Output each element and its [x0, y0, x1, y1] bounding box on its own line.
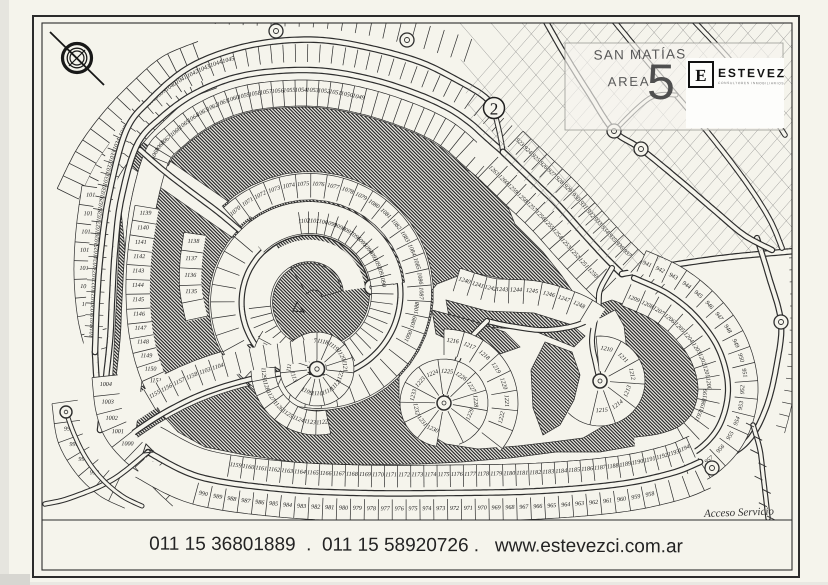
svg-text:1076: 1076: [312, 181, 326, 188]
svg-text:1177: 1177: [464, 472, 477, 478]
svg-text:1003: 1003: [102, 400, 114, 406]
svg-text:1147: 1147: [135, 326, 148, 332]
svg-text:1142: 1142: [133, 254, 145, 260]
svg-text:1055: 1055: [283, 88, 295, 95]
svg-text:ESTEVEZ: ESTEVEZ: [718, 66, 786, 80]
svg-text:961: 961: [603, 498, 613, 505]
svg-text:970: 970: [478, 506, 487, 512]
svg-text:1138: 1138: [188, 239, 200, 245]
svg-text:1141: 1141: [135, 240, 147, 246]
svg-text:1002: 1002: [106, 416, 118, 422]
svg-text:1140: 1140: [137, 225, 149, 231]
svg-text:965: 965: [547, 503, 556, 510]
svg-text:1148: 1148: [137, 339, 149, 345]
svg-text:1228: 1228: [472, 395, 479, 408]
svg-text:1174: 1174: [425, 472, 437, 478]
svg-text:1225: 1225: [441, 369, 454, 376]
svg-text:1221: 1221: [503, 395, 509, 407]
svg-text:981: 981: [325, 505, 334, 511]
svg-text:1075: 1075: [297, 181, 310, 188]
svg-text:1145: 1145: [132, 297, 144, 303]
svg-text:969: 969: [491, 505, 500, 511]
svg-text:1122: 1122: [316, 419, 328, 426]
svg-text:1243: 1243: [496, 287, 509, 294]
svg-text:1146: 1146: [133, 312, 146, 318]
svg-text:CONSULTORES INMOBILIARIOS: CONSULTORES INMOBILIARIOS: [718, 81, 784, 85]
svg-text:986: 986: [255, 500, 266, 507]
svg-text:1000: 1000: [121, 441, 133, 447]
svg-text:1175: 1175: [438, 472, 450, 478]
svg-text:1178: 1178: [477, 472, 489, 478]
svg-text:1166: 1166: [320, 471, 333, 478]
svg-text:1244: 1244: [510, 287, 522, 293]
svg-text:1143: 1143: [132, 268, 144, 274]
svg-text:979: 979: [353, 506, 362, 512]
svg-text:1215: 1215: [596, 408, 609, 415]
svg-text:1171: 1171: [385, 472, 397, 478]
svg-text:1185: 1185: [568, 467, 580, 474]
svg-text:962: 962: [589, 500, 599, 507]
svg-text:1144: 1144: [132, 283, 144, 289]
svg-text:E: E: [695, 66, 706, 85]
svg-text:Acceso Servicio: Acceso Servicio: [703, 506, 775, 520]
svg-text:952: 952: [740, 385, 746, 394]
svg-text:967: 967: [519, 505, 529, 511]
svg-text:1179: 1179: [490, 471, 502, 477]
svg-text:1004: 1004: [100, 382, 112, 388]
svg-text:1170: 1170: [372, 472, 384, 478]
svg-text:966: 966: [533, 504, 543, 510]
svg-text:1173: 1173: [411, 472, 423, 478]
svg-text:971: 971: [464, 506, 473, 512]
svg-text:1183: 1183: [542, 469, 554, 476]
svg-text:976: 976: [395, 506, 405, 512]
svg-text:1149: 1149: [141, 353, 153, 359]
svg-text:AREA: AREA: [608, 74, 651, 90]
svg-text:972: 972: [450, 506, 459, 512]
svg-text:963: 963: [575, 501, 585, 508]
svg-text:1184: 1184: [555, 468, 567, 475]
svg-text:982: 982: [311, 504, 320, 510]
svg-text:1087: 1087: [417, 287, 423, 300]
svg-text:1172: 1172: [398, 472, 410, 478]
svg-text:960: 960: [617, 496, 627, 503]
svg-text:011 15 36801889 . 011 15 589: 011 15 36801889 . 011 15 58920726 . www.…: [149, 534, 684, 558]
svg-text:1150: 1150: [145, 367, 157, 373]
svg-text:1161: 1161: [255, 465, 267, 472]
svg-text:1176: 1176: [451, 472, 464, 478]
svg-text:973: 973: [436, 506, 445, 512]
svg-text:1054: 1054: [295, 88, 307, 94]
svg-text:974: 974: [422, 506, 431, 512]
svg-text:1163: 1163: [281, 468, 293, 475]
svg-text:1137: 1137: [185, 256, 198, 262]
svg-text:968: 968: [505, 505, 514, 511]
svg-text:983: 983: [297, 504, 307, 511]
svg-text:1164: 1164: [294, 469, 306, 476]
svg-text:1001: 1001: [112, 429, 124, 435]
svg-text:977: 977: [381, 506, 391, 512]
svg-text:2: 2: [490, 99, 499, 118]
svg-text:1139: 1139: [140, 211, 152, 217]
svg-text:1182: 1182: [529, 470, 541, 477]
svg-text:5: 5: [647, 54, 675, 110]
svg-text:1121: 1121: [340, 360, 347, 372]
svg-text:1135: 1135: [185, 289, 197, 295]
svg-text:1167: 1167: [333, 471, 346, 477]
svg-text:987: 987: [241, 498, 252, 505]
svg-text:1129: 1129: [260, 367, 267, 379]
svg-text:1181: 1181: [516, 470, 528, 476]
svg-text:984: 984: [283, 502, 293, 509]
svg-text:1199: 1199: [702, 389, 709, 401]
svg-text:1186: 1186: [581, 466, 594, 473]
svg-text:1180: 1180: [503, 471, 515, 477]
svg-text:978: 978: [367, 506, 376, 512]
svg-text:1165: 1165: [307, 470, 319, 477]
svg-text:980: 980: [339, 505, 348, 511]
svg-text:975: 975: [408, 506, 417, 512]
svg-text:1168: 1168: [346, 472, 358, 478]
svg-text:1162: 1162: [268, 467, 280, 474]
svg-text:964: 964: [561, 502, 571, 509]
svg-text:1136: 1136: [185, 273, 198, 279]
svg-text:985: 985: [269, 501, 279, 508]
svg-text:1169: 1169: [359, 472, 371, 478]
